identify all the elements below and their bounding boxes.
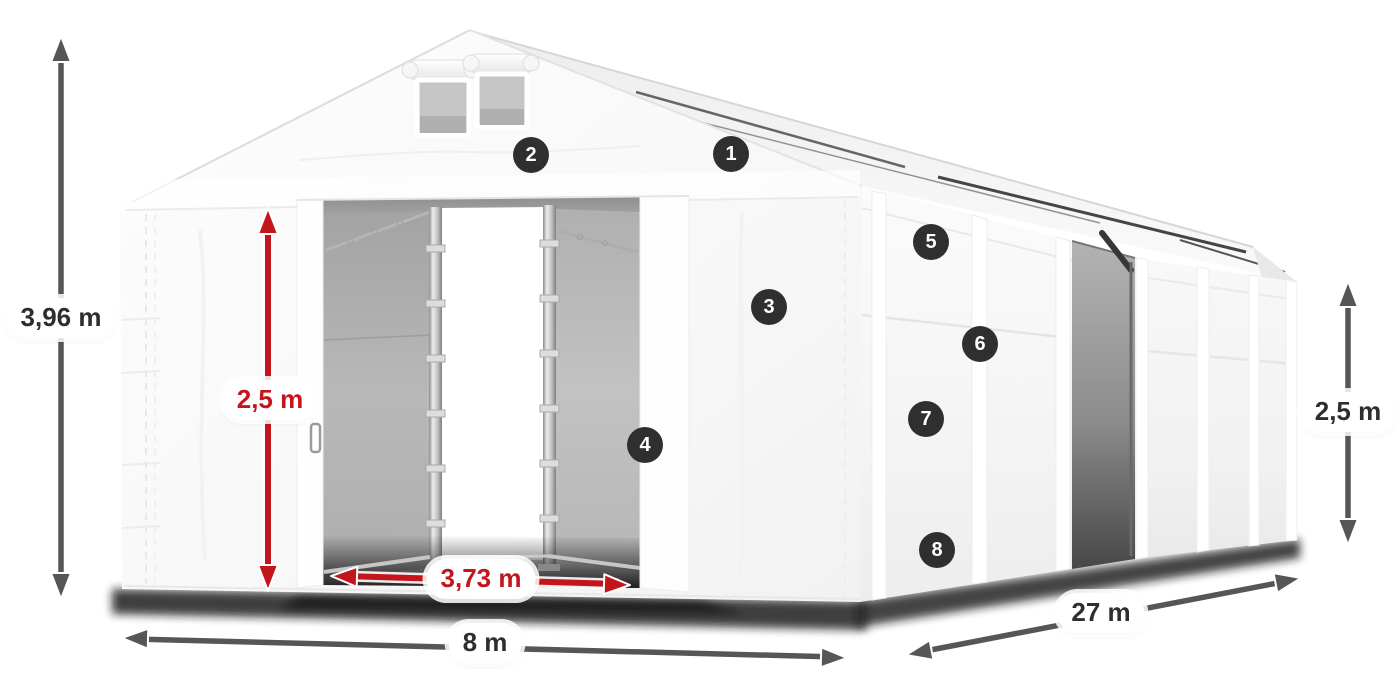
side-open-bay <box>1072 233 1135 569</box>
dimension-total-height: 3,96 m <box>7 298 116 338</box>
tent-dimension-diagram: 3,96 m 2,5 m 3,73 m 8 m 27 m 2,5 m 1 2 3… <box>0 0 1400 700</box>
callout-6-number: 6 <box>974 333 985 356</box>
callout-7[interactable]: 7 <box>908 401 944 437</box>
dimension-length: 27 m <box>1057 593 1144 633</box>
dimension-door-width: 3,73 m <box>427 559 536 599</box>
callout-7-number: 7 <box>920 408 931 431</box>
callout-5[interactable]: 5 <box>913 224 949 260</box>
callout-8[interactable]: 8 <box>919 532 955 568</box>
callout-3[interactable]: 3 <box>751 289 787 325</box>
dimension-side-height: 2,5 m <box>1301 392 1396 432</box>
front-door-opening <box>297 196 689 592</box>
dimension-width: 8 m <box>449 623 522 663</box>
tent-illustration <box>0 0 1400 700</box>
dimension-door-height: 2,5 m <box>223 380 318 420</box>
callout-1[interactable]: 1 <box>713 136 749 172</box>
callout-8-number: 8 <box>931 539 942 562</box>
callout-6[interactable]: 6 <box>962 326 998 362</box>
callout-3-number: 3 <box>763 296 774 319</box>
callout-4-number: 4 <box>639 434 650 457</box>
callout-2-number: 2 <box>525 144 536 167</box>
callout-2[interactable]: 2 <box>513 137 549 173</box>
callout-4[interactable]: 4 <box>627 427 663 463</box>
callout-5-number: 5 <box>925 231 936 254</box>
callout-1-number: 1 <box>725 143 736 166</box>
